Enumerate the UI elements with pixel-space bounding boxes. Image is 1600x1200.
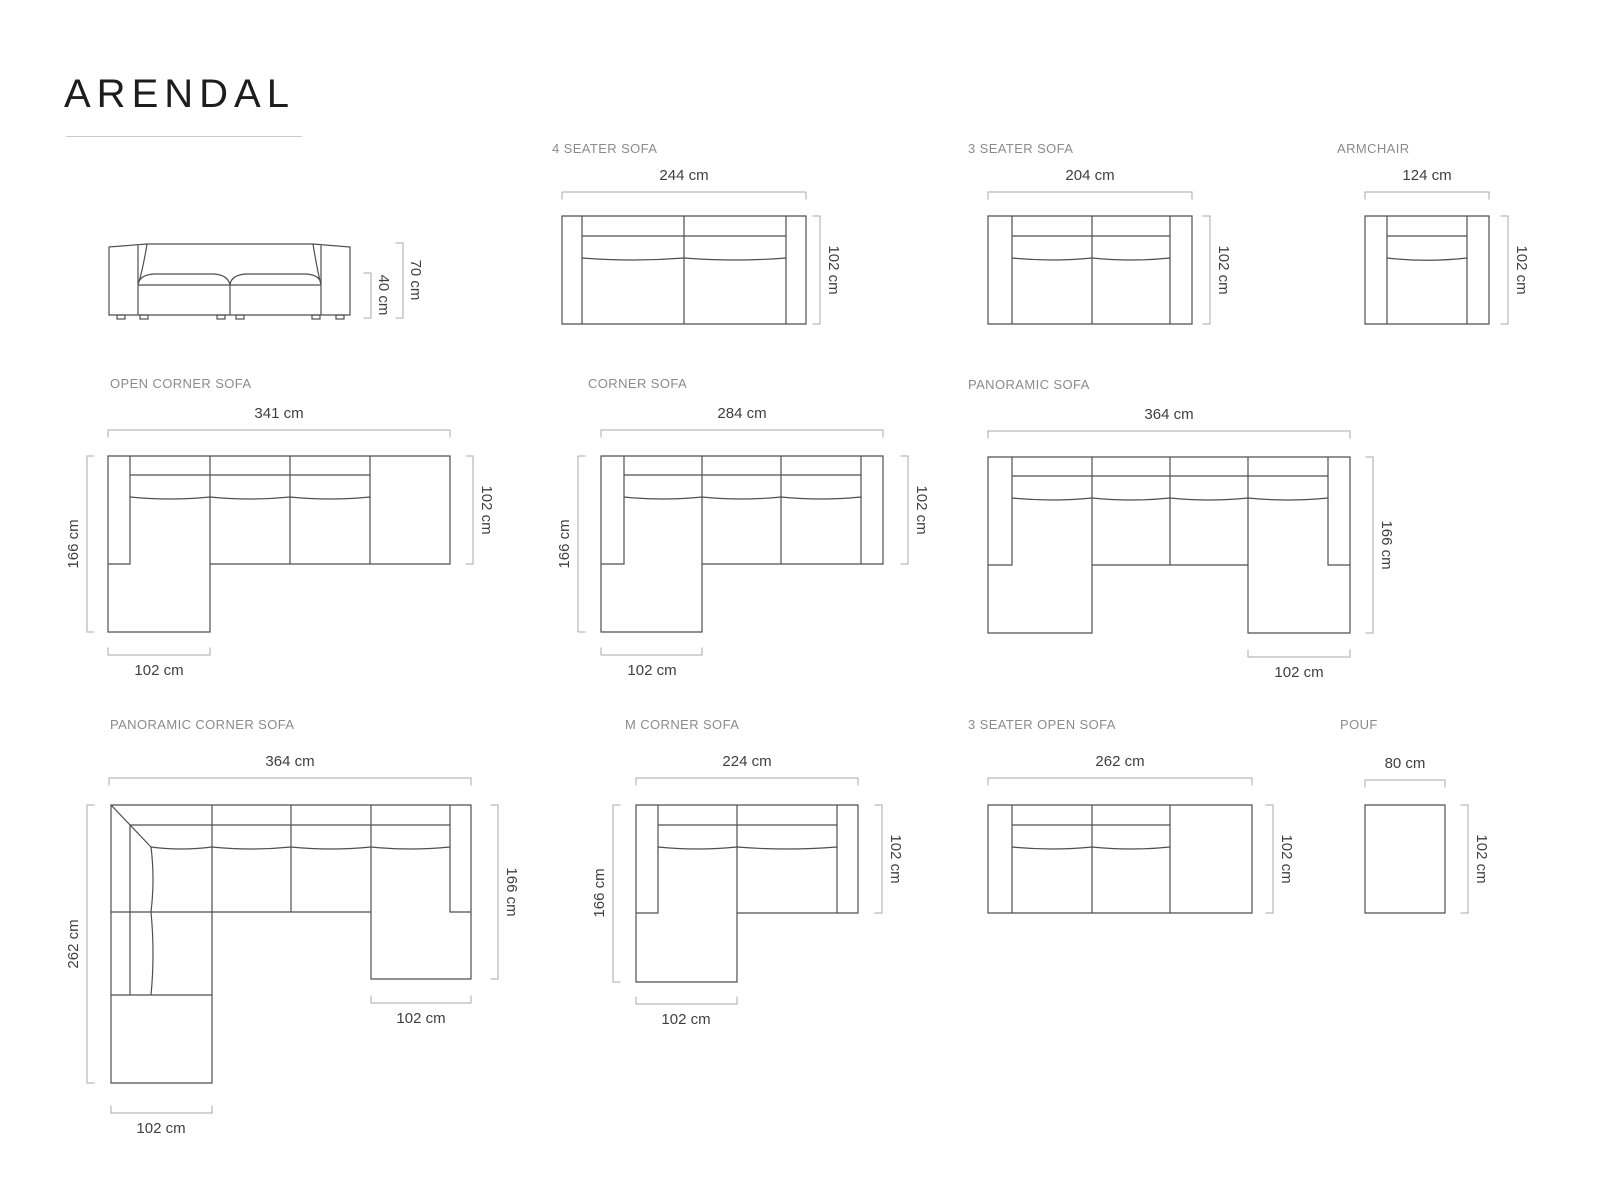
dim-left-chaise-width: 102 cm — [121, 1119, 201, 1139]
dim-width: 124 cm — [1387, 166, 1467, 186]
sofa-top-view-drawing — [965, 135, 1225, 335]
sofa-top-view-drawing — [550, 135, 860, 335]
dim-width: 262 cm — [1080, 752, 1160, 772]
dim-chaise-width: 102 cm — [612, 661, 692, 681]
dim-depth: 102 cm — [912, 475, 930, 545]
dim-depth: 102 cm — [1512, 235, 1530, 305]
dimension-lines — [988, 431, 1373, 657]
dimension-lines — [87, 778, 498, 1113]
dim-depth: 102 cm — [1472, 824, 1490, 894]
sofa-feet — [117, 315, 344, 319]
dim-total-depth: 166 cm — [591, 858, 609, 928]
dim-seat-height: 40 cm — [374, 260, 392, 330]
dim-width: 224 cm — [707, 752, 787, 772]
dim-left-depth: 262 cm — [65, 909, 83, 979]
dim-total-depth: 166 cm — [556, 509, 574, 579]
dim-depth: 102 cm — [824, 235, 842, 305]
dimension-lines — [613, 778, 882, 1004]
diagram-3-seater-open-sofa: 3 SEATER OPEN SOFA 262 cm 102 cm — [955, 705, 1305, 935]
dim-total-depth: 166 cm — [65, 509, 83, 579]
dim-total-depth: 166 cm — [1377, 510, 1395, 580]
pouf-top-view-drawing — [1325, 705, 1520, 935]
dim-depth: 102 cm — [1277, 824, 1295, 894]
dim-right-depth: 166 cm — [502, 857, 520, 927]
dim-chaise-width: 102 cm — [1259, 663, 1339, 683]
dim-depth: 102 cm — [1214, 235, 1232, 305]
diagram-panoramic-sofa: PANORAMIC SOFA 364 cm 166 cm 102 cm — [940, 360, 1410, 690]
diagram-corner-sofa: CORNER SOFA 284 cm 166 cm 102 cm 102 cm — [540, 360, 960, 690]
diagram-pouf: POUF 80 cm 102 cm — [1325, 705, 1520, 935]
dimension-lines — [988, 778, 1273, 913]
diagram-3-seater-sofa: 3 SEATER SOFA 204 cm 102 cm — [965, 135, 1225, 335]
diagram-m-corner-sofa: M CORNER SOFA 224 cm 166 cm 102 cm 102 c… — [560, 705, 960, 1045]
dim-width: 364 cm — [250, 752, 330, 772]
sofa-top-view-drawing — [955, 705, 1305, 935]
diagram-open-corner-sofa: OPEN CORNER SOFA 341 cm 166 cm 102 cm 10… — [60, 360, 510, 690]
dim-depth: 102 cm — [477, 475, 495, 545]
dim-chaise-width: 102 cm — [119, 661, 199, 681]
dim-width: 284 cm — [702, 404, 782, 424]
page-title: ARENDAL — [64, 72, 295, 117]
dim-width: 364 cm — [1129, 405, 1209, 425]
dim-depth: 102 cm — [886, 824, 904, 894]
diagram-panoramic-corner-sofa: PANORAMIC CORNER SOFA 364 cm 262 cm 166 … — [60, 705, 535, 1160]
dim-width: 244 cm — [644, 166, 724, 186]
dimension-lines — [988, 192, 1210, 324]
dimension-lines — [1365, 780, 1468, 913]
title-underline — [66, 136, 302, 137]
dim-height: 70 cm — [406, 245, 424, 315]
dim-width: 204 cm — [1050, 166, 1130, 186]
dim-width: 341 cm — [239, 404, 319, 424]
sofa-top-view-drawing — [60, 705, 535, 1160]
dimension-lines — [578, 430, 908, 655]
diagram-4-seater-sofa: 4 SEATER SOFA 244 cm 102 cm — [550, 135, 860, 335]
dim-right-chaise-width: 102 cm — [381, 1009, 461, 1029]
diagram-sofa-elevation: 40 cm 70 cm — [100, 235, 460, 330]
dim-chaise-width: 102 cm — [646, 1010, 726, 1030]
dim-width: 80 cm — [1365, 754, 1445, 774]
dimension-lines — [87, 430, 473, 655]
diagram-armchair: ARMCHAIR 124 cm 102 cm — [1330, 135, 1545, 335]
